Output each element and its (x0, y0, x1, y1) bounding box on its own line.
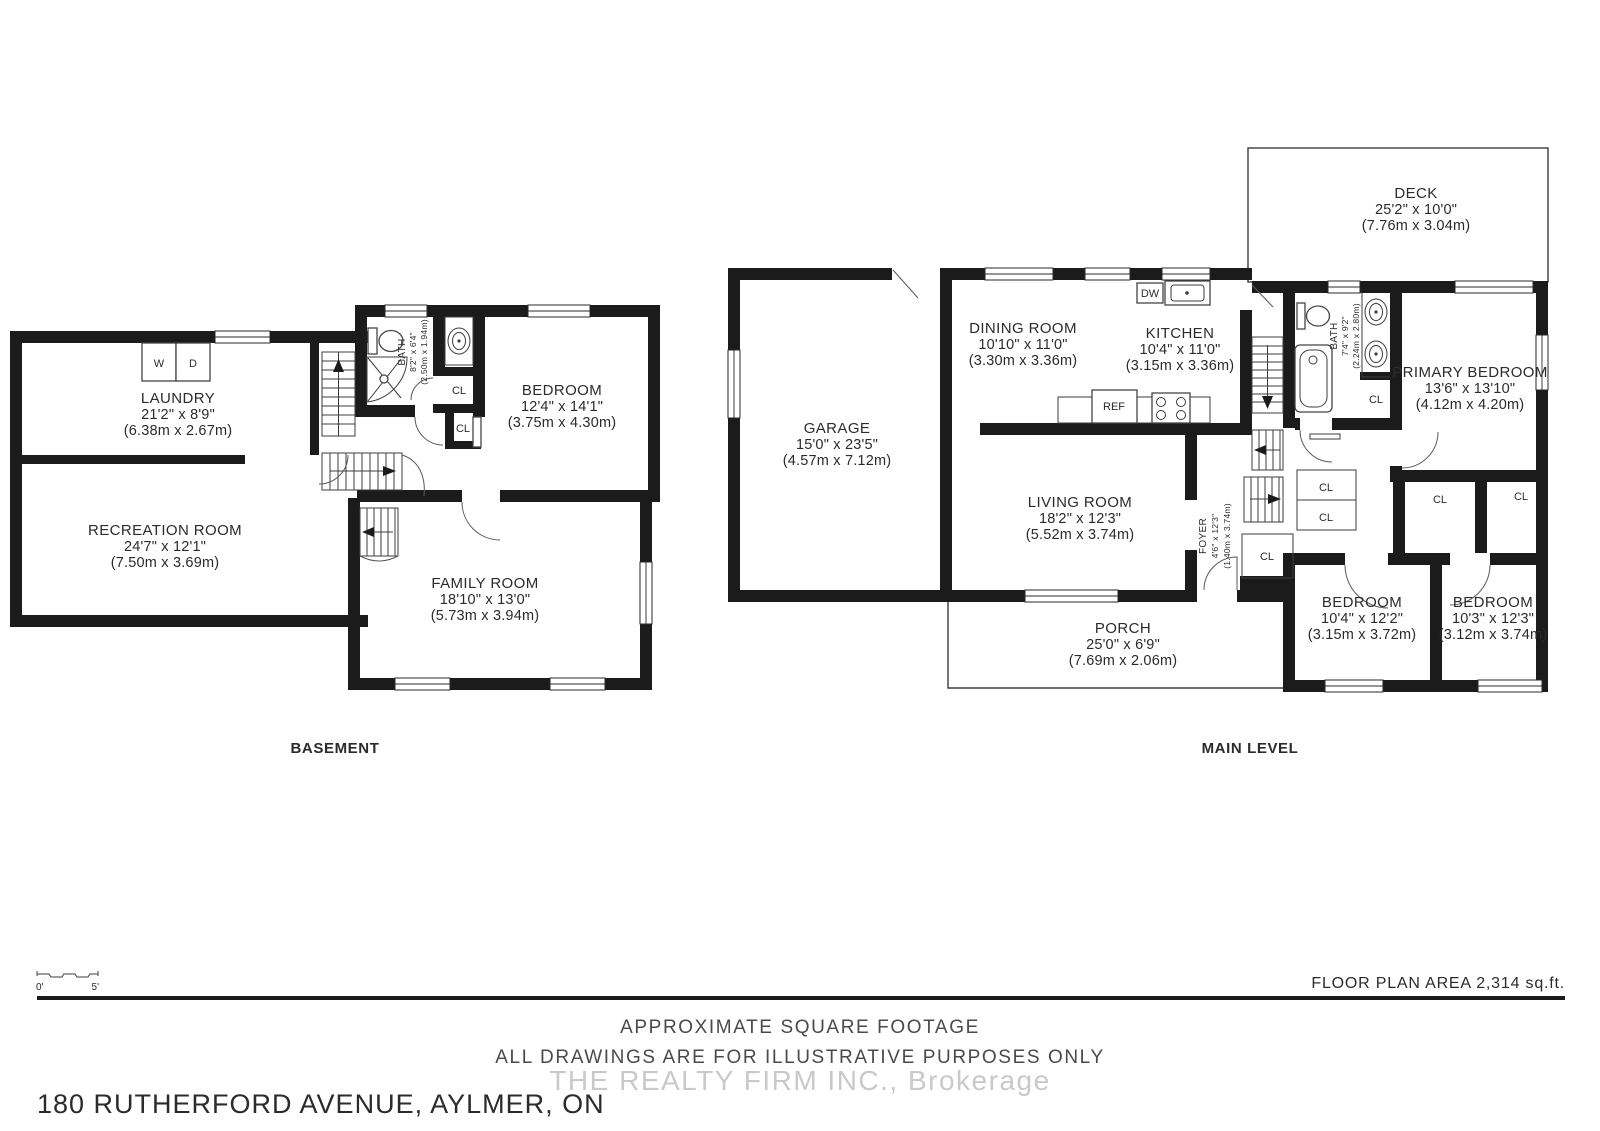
double-vanity-icon (1362, 293, 1390, 377)
room-name: BEDROOM (1322, 594, 1402, 611)
floor-plan-page: W D (0, 0, 1600, 1131)
room-label-foyer: FOYER 4'6" x 12'3" (1.40m x 3.74m) (1198, 503, 1232, 569)
room-dims-ft: 7'4" x 9'2" (1340, 316, 1350, 356)
room-dims-ft: 21'2" x 8'9" (141, 407, 215, 423)
room-name: BEDROOM (522, 382, 602, 399)
washer-label: W (154, 358, 165, 370)
room-dims-ft: 18'10" x 13'0" (440, 592, 530, 608)
main-stairs-down (1252, 337, 1283, 413)
window-icon (1025, 590, 1118, 602)
room-dims-ft: 13'6" x 13'10" (1425, 381, 1515, 397)
room-dims-m: (2.24m x 2.80m) (1351, 303, 1361, 369)
main-level-caption: MAIN LEVEL (1202, 740, 1299, 757)
room-name: GARAGE (804, 420, 871, 437)
room-name: LAUNDRY (141, 390, 215, 407)
vanity-sink-icon (445, 317, 473, 365)
room-name: KITCHEN (1146, 325, 1215, 342)
window-icon (985, 268, 1053, 280)
basement-stairs-up (322, 352, 355, 436)
room-label-kitchen: KITCHEN 10'4" x 11'0" (3.15m x 3.36m) (1126, 325, 1235, 374)
room-label-bedroom2: BEDROOM 10'4" x 12'2" (3.15m x 3.72m) (1308, 594, 1417, 643)
room-dims-ft: 10'3" x 12'3" (1452, 611, 1534, 627)
room-dims-m: (3.12m x 3.74m) (1439, 627, 1548, 643)
room-dims-ft: 18'2" x 12'3" (1039, 511, 1121, 527)
basement-plan: W D (10, 305, 660, 757)
room-label-laundry: LAUNDRY 21'2" x 8'9" (6.38m x 2.67m) (124, 390, 233, 439)
closet-label: CL (1319, 482, 1333, 494)
room-dims-m: (1.40m x 3.74m) (1222, 503, 1232, 569)
room-dims-m: (3.15m x 3.36m) (1126, 358, 1235, 374)
main-stairs-mid (1252, 430, 1283, 470)
closet-label: CL (1514, 491, 1528, 503)
room-dims-ft: 10'4" x 12'2" (1321, 611, 1403, 627)
room-dims-m: (3.75m x 4.30m) (508, 415, 617, 431)
main-level-plan: DW REF (728, 148, 1548, 757)
room-name: BATH (397, 338, 408, 365)
window-icon (215, 331, 270, 343)
window-icon (1162, 268, 1210, 280)
property-address: 180 RUTHERFORD AVENUE, AYLMER, ON (37, 1089, 605, 1119)
scale-zero-label: 0' (36, 982, 44, 993)
brokerage-watermark: THE REALTY FIRM INC., Brokerage (549, 1065, 1050, 1096)
room-label-porch: PORCH 25'0" x 6'9" (7.69m x 2.06m) (1069, 620, 1178, 669)
closet-label: CL (1369, 394, 1383, 406)
room-dims-m: (3.30m x 3.36m) (969, 353, 1078, 369)
room-label-family: FAMILY ROOM 18'10" x 13'0" (5.73m x 3.94… (431, 575, 540, 624)
stove-icon (1152, 393, 1190, 423)
kitchen-sink-icon (1165, 281, 1210, 305)
window-icon (640, 562, 652, 624)
room-dims-ft: 10'10" x 11'0" (978, 337, 1067, 353)
scale-five-label: 5' (92, 982, 100, 993)
room-dims-ft: 15'0" x 23'5" (796, 437, 878, 453)
room-dims-m: (3.15m x 3.72m) (1308, 627, 1417, 643)
dryer-label: D (189, 358, 197, 370)
basement-stairs-mid (322, 453, 424, 496)
room-name: DECK (1394, 185, 1437, 202)
window-icon (728, 350, 740, 418)
window-icon (385, 305, 427, 317)
window-icon (1328, 281, 1360, 293)
room-name: LIVING ROOM (1028, 494, 1132, 511)
closet-label: CL (1260, 551, 1274, 563)
fridge-label: REF (1103, 401, 1125, 413)
bath-mat-icon (1310, 434, 1340, 439)
closet-label: CL (1433, 494, 1447, 506)
room-dims-m: (7.76m x 3.04m) (1362, 218, 1471, 234)
room-dims-ft: 25'0" x 6'9" (1086, 637, 1160, 653)
footer: 0' 5' FLOOR PLAN AREA 2,314 sq.ft. APPRO… (36, 971, 1565, 1119)
room-label-bedroom3: BEDROOM 10'3" x 12'3" (3.12m x 3.74m) (1439, 594, 1548, 643)
room-name: PRIMARY BEDROOM (1392, 364, 1547, 381)
floor-plan-area-text: FLOOR PLAN AREA 2,314 sq.ft. (1311, 975, 1565, 992)
closet-label: CL (456, 423, 470, 435)
window-icon (1478, 680, 1542, 692)
basement-stairs-lower (360, 508, 398, 561)
room-dims-ft: 4'6" x 12'3" (1210, 514, 1220, 559)
scale-bar: 0' 5' (36, 971, 99, 993)
bathtub-icon (1295, 345, 1332, 412)
window-icon (1085, 268, 1130, 280)
room-label-main-bath: BATH 7'4" x 9'2" (2.24m x 2.80m) (1329, 303, 1361, 369)
room-dims-ft: 10'4" x 11'0" (1139, 342, 1220, 358)
window-icon (395, 678, 450, 690)
room-dims-m: (5.73m x 3.94m) (431, 608, 540, 624)
room-label-deck: DECK 25'2" x 10'0" (7.76m x 3.04m) (1362, 185, 1471, 234)
room-name: FOYER (1198, 518, 1209, 554)
room-label-recreation: RECREATION ROOM 24'7" x 12'1" (7.50m x 3… (88, 522, 242, 571)
room-dims-m: (5.52m x 3.74m) (1026, 527, 1135, 543)
room-dims-ft: 25'2" x 10'0" (1375, 202, 1457, 218)
room-name: DINING ROOM (969, 320, 1077, 337)
disclaimer-line1: APPROXIMATE SQUARE FOOTAGE (620, 1017, 980, 1038)
room-dims-m: (6.38m x 2.67m) (124, 423, 233, 439)
dishwasher-label: DW (1141, 288, 1160, 300)
footer-divider (37, 996, 1565, 1000)
window-icon (1455, 281, 1533, 293)
room-dims-m: (2.50m x 1.94m) (419, 319, 429, 385)
toilet-icon (1297, 303, 1330, 329)
basement-walls (10, 305, 660, 690)
room-dims-ft: 24'7" x 12'1" (124, 539, 206, 555)
closet-label: CL (452, 385, 466, 397)
room-dims-m: (7.50m x 3.69m) (111, 555, 220, 571)
room-name: BEDROOM (1453, 594, 1533, 611)
window-icon (1325, 680, 1383, 692)
room-name: PORCH (1095, 620, 1151, 637)
room-dims-ft: 12'4" x 14'1" (521, 399, 603, 415)
room-label-basement-bath: BATH 8'2" x 6'4" (2.50m x 1.94m) (397, 319, 429, 385)
room-label-dining: DINING ROOM 10'10" x 11'0" (3.30m x 3.36… (969, 320, 1078, 369)
room-label-living: LIVING ROOM 18'2" x 12'3" (5.52m x 3.74m… (1026, 494, 1135, 543)
closet-door-icon (473, 417, 481, 447)
room-dims-m: (7.69m x 2.06m) (1069, 653, 1178, 669)
room-name: FAMILY ROOM (431, 575, 538, 592)
room-dims-m: (4.12m x 4.20m) (1416, 397, 1525, 413)
room-label-basement-bedroom: BEDROOM 12'4" x 14'1" (3.75m x 4.30m) (508, 382, 617, 431)
room-label-primary: PRIMARY BEDROOM 13'6" x 13'10" (4.12m x … (1392, 364, 1547, 413)
window-icon (1536, 335, 1548, 390)
room-dims-m: (4.57m x 7.12m) (783, 453, 892, 469)
floor-plan-svg: W D (0, 0, 1600, 1131)
basement-caption: BASEMENT (291, 740, 380, 757)
room-label-garage: GARAGE 15'0" x 23'5" (4.57m x 7.12m) (783, 420, 892, 469)
window-icon (550, 678, 605, 690)
room-name: RECREATION ROOM (88, 522, 242, 539)
room-name: BATH (1329, 322, 1340, 349)
room-dims-ft: 8'2" x 6'4" (408, 332, 418, 372)
closet-label: CL (1319, 512, 1333, 524)
main-stairs-foyer (1244, 477, 1283, 522)
window-icon (528, 305, 590, 317)
